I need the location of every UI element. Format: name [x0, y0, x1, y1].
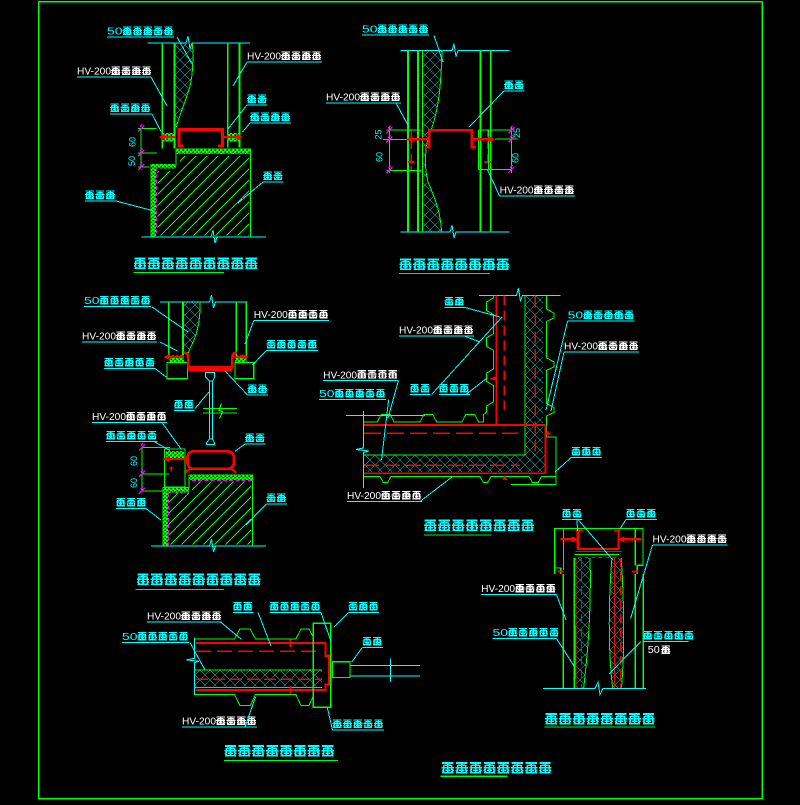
svg-text:HV-200: HV-200	[347, 491, 381, 502]
svg-text:50: 50	[122, 632, 138, 643]
svg-text:HV-200: HV-200	[247, 52, 281, 63]
svg-text:HV-200: HV-200	[653, 535, 687, 546]
svg-text:60: 60	[128, 137, 138, 147]
svg-text:50: 50	[362, 25, 378, 36]
svg-text:50: 50	[493, 628, 509, 639]
svg-text:50: 50	[107, 27, 123, 38]
svg-text:HV-200: HV-200	[82, 332, 116, 343]
svg-text:HV-200: HV-200	[500, 186, 534, 197]
svg-text:HV-200: HV-200	[182, 717, 216, 728]
svg-text:60: 60	[375, 152, 385, 162]
svg-text:50: 50	[568, 311, 584, 322]
svg-text:50: 50	[84, 296, 100, 307]
svg-text:HV-200: HV-200	[254, 310, 288, 321]
svg-text:25: 25	[512, 128, 522, 138]
svg-text:25: 25	[374, 129, 384, 139]
svg-text:HV-200: HV-200	[481, 584, 515, 595]
svg-text:50: 50	[127, 156, 137, 166]
svg-text:HV-200: HV-200	[564, 342, 598, 353]
svg-text:60: 60	[511, 153, 521, 163]
svg-text:HV-200: HV-200	[92, 412, 126, 423]
svg-text:HV-200: HV-200	[399, 326, 433, 337]
svg-text:HV-200: HV-200	[77, 67, 111, 78]
svg-text:50: 50	[648, 645, 660, 656]
svg-text:HV-200: HV-200	[147, 612, 181, 623]
svg-text:HV-200: HV-200	[326, 93, 360, 104]
svg-text:HV-200: HV-200	[323, 370, 357, 381]
svg-text:60: 60	[129, 478, 139, 488]
svg-text:60: 60	[129, 456, 139, 466]
svg-text:50: 50	[319, 389, 335, 400]
